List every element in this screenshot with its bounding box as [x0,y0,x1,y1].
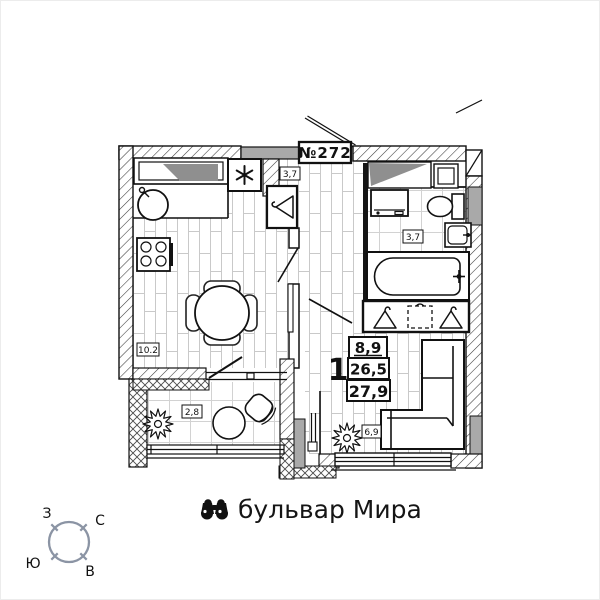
bathroom-sink [445,223,471,247]
kitchen-area-label: 10.2 [137,343,159,356]
vent-shaft [228,159,261,191]
compass-labels: З С Ю В [25,506,105,580]
corner-leader-line [456,100,482,113]
balcony-area-label: 2,8 [182,405,202,418]
compass-east-label: В [85,564,95,580]
compass-north-label: С [95,513,105,529]
apartment-number-label: №272 [298,144,351,162]
hall-area-label: 3,7 [280,167,300,180]
floor-plan: 10.2 3,7 3,7 2,8 6,9 1 8,9 26,5 27,9 [1,1,600,600]
washing-machine [371,190,408,216]
room-area-label: 6,9 [362,425,381,438]
room-window [331,453,456,470]
kitchen-door-leaf [288,284,293,332]
toilet [428,194,465,219]
wall-balcony-room [280,359,294,439]
wall-right-shaft-bottom [470,416,482,454]
entry-door [368,162,431,188]
street-name: бульвар Мира [238,495,422,524]
compass: З С Ю В [25,506,105,580]
balcony-wall-left [129,379,147,467]
stove [137,238,173,271]
street-label: бульвар Мира [201,495,422,524]
compass-west-label: З [43,506,52,522]
built-in-closet [363,301,469,332]
rooms-count: 1 [328,353,349,388]
wall-left [119,146,133,379]
floorplan-page: 10.2 3,7 3,7 2,8 6,9 1 8,9 26,5 27,9 [0,0,600,600]
wall-kitchen-balcony-parapet [133,379,209,390]
svg-text:3,7: 3,7 [283,170,297,180]
dining-table-top [195,286,249,340]
entry-leader-line [308,116,356,145]
wall-kitchen-hall-upper [289,228,299,248]
bathtub [367,252,469,300]
apartment-area-value: 26,5 [350,361,387,379]
wall-top-right [353,146,466,161]
svg-text:3,7: 3,7 [406,233,420,243]
svg-text:6,9: 6,9 [364,428,379,438]
wall-top-left [119,146,241,159]
kitchen-window [134,158,228,184]
living-area-value: 8,9 [355,339,382,357]
wall-right-shaft-top [468,187,482,225]
bathroom-area-label: 3,7 [403,230,423,243]
svg-text:2,8: 2,8 [185,408,200,418]
wall-top-gray [241,147,299,159]
entry-cabinet [434,164,458,188]
total-area-value: 27,9 [349,382,388,401]
hall-wardrobe [267,186,297,228]
compass-south-label: Ю [25,556,40,572]
shaft-gray-block [294,419,305,468]
svg-text:10.2: 10.2 [138,346,158,356]
wall-kitchen-balcony [133,368,206,379]
wall-bottom-right-corner [451,454,482,468]
hall-floor [299,161,363,336]
balcony-glazing [147,445,284,458]
balcony-table [213,407,245,439]
binoculars-icon [201,499,228,519]
